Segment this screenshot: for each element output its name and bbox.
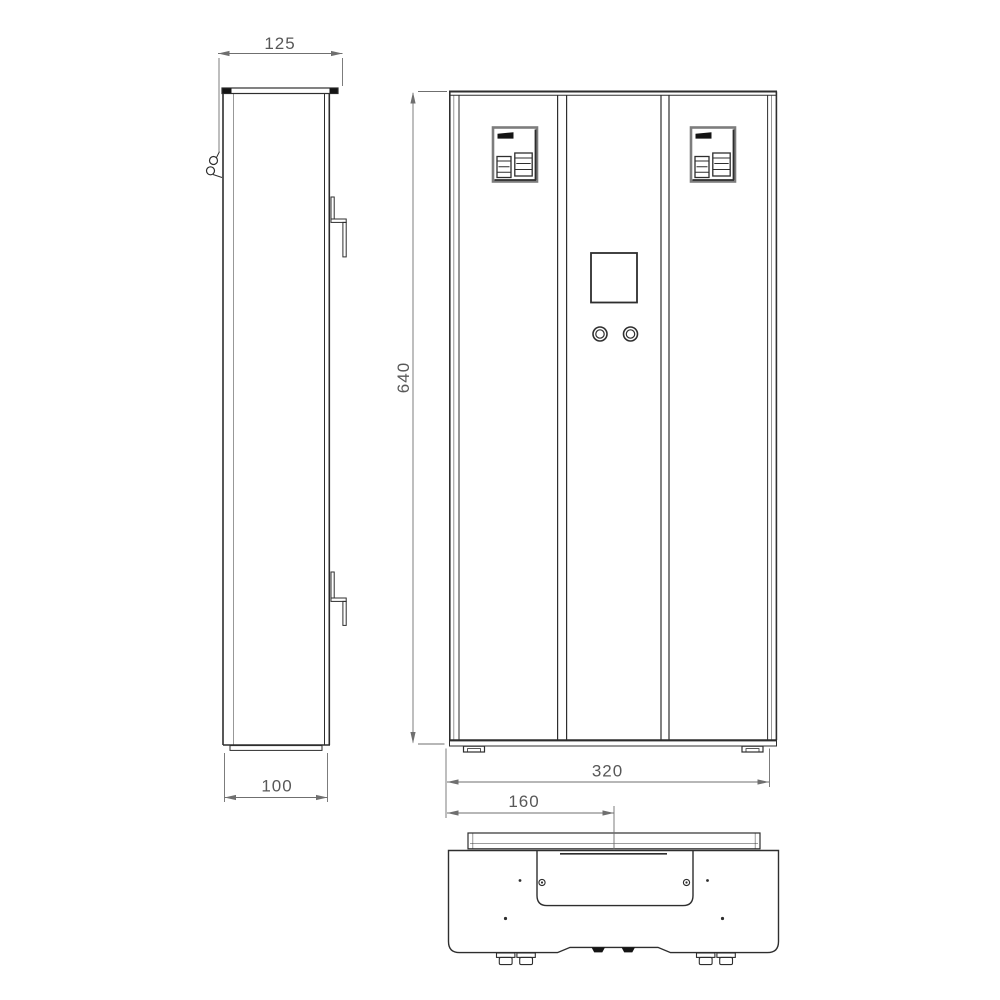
dim-125-label: 125 xyxy=(264,34,295,53)
dim-640-label: 640 xyxy=(394,362,413,393)
dim-100-label: 100 xyxy=(261,777,292,796)
technical-drawing: 125 640 320 100 xyxy=(0,0,1000,1000)
dim-160-label: 160 xyxy=(508,792,539,811)
dim-320-label: 320 xyxy=(592,762,623,781)
